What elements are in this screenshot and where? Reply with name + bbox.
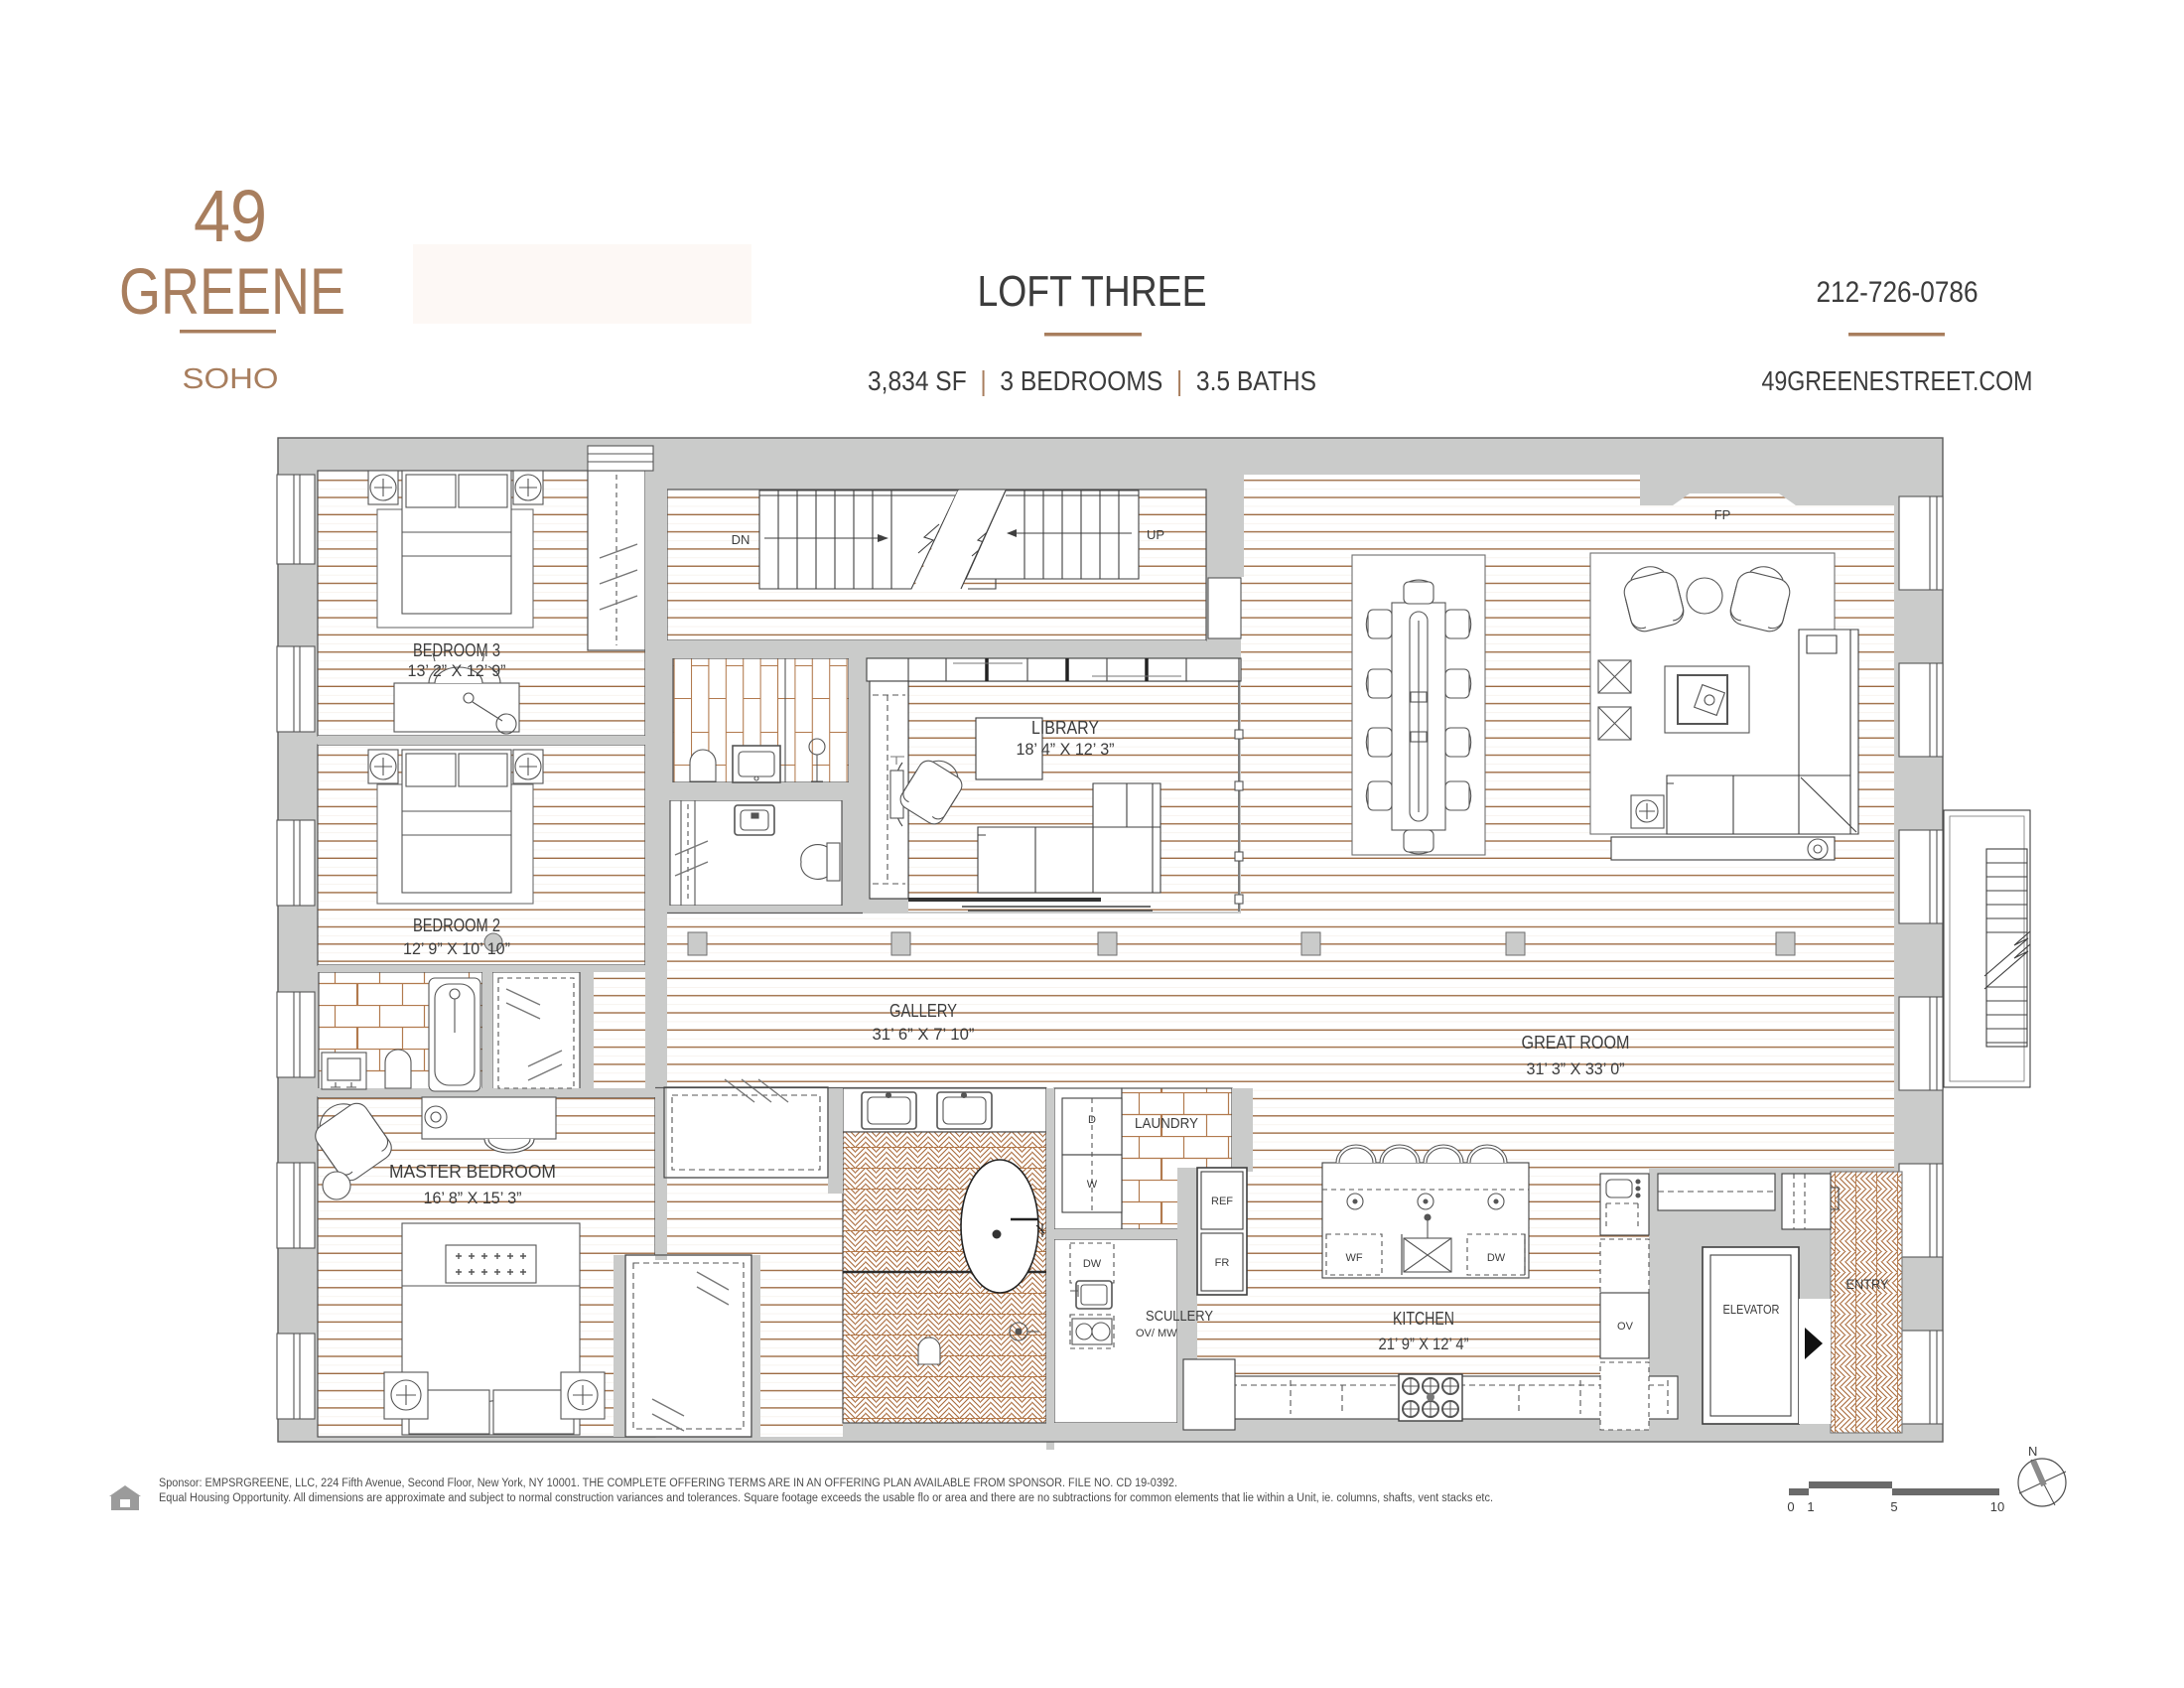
svg-text:MASTER BEDROOM: MASTER BEDROOM [389,1161,556,1182]
svg-text:DW: DW [1083,1258,1102,1270]
svg-text:49GREENESTREET.COM: 49GREENESTREET.COM [1762,365,2033,396]
svg-text:12’ 9” X 10’ 10”: 12’ 9” X 10’ 10” [403,940,510,958]
svg-text:WF: WF [1345,1252,1362,1264]
svg-text:OV: OV [1617,1321,1634,1333]
svg-text:DN: DN [732,532,751,547]
svg-text:0: 0 [1787,1499,1794,1514]
svg-text:FP: FP [1714,507,1731,522]
svg-text:31’ 6” X 7’ 10”: 31’ 6” X 7’ 10” [873,1026,975,1044]
svg-text:SCULLERY: SCULLERY [1146,1309,1213,1325]
svg-text:13’ 2” X 12’ 9”: 13’ 2” X 12’ 9” [408,662,506,680]
svg-text:3,834 SF | 3 BEDROOMS | 3.: 3,834 SF | 3 BEDROOMS | 3.5 BATHS [868,365,1316,396]
svg-text:REF: REF [1211,1196,1233,1207]
svg-text:LOFT THREE: LOFT THREE [978,267,1207,316]
svg-text:21’ 9” X 12’ 4”: 21’ 9” X 12’ 4” [1379,1336,1469,1353]
svg-text:5: 5 [1890,1499,1897,1514]
svg-text:18’ 4” X 12’ 3”: 18’ 4” X 12’ 3” [1017,741,1115,759]
svg-text:D: D [1088,1114,1096,1126]
svg-text:OV/ MW: OV/ MW [1136,1328,1177,1339]
svg-text:49: 49 [194,175,267,257]
svg-text:BEDROOM 2: BEDROOM 2 [413,914,500,935]
svg-text:ELEVATOR: ELEVATOR [1723,1303,1780,1317]
svg-text:1: 1 [1807,1499,1814,1514]
svg-text:Sponsor: EMPSRGREENE, LLC, 224: Sponsor: EMPSRGREENE, LLC, 224 Fifth Ave… [159,1477,1177,1489]
svg-text:212-726-0786: 212-726-0786 [1817,276,1979,309]
svg-text:UP: UP [1147,527,1164,542]
svg-text:FR: FR [1215,1257,1230,1269]
svg-text:N: N [2028,1444,2037,1459]
svg-text:GREAT ROOM: GREAT ROOM [1522,1032,1630,1053]
svg-text:LAUNDRY: LAUNDRY [1135,1116,1198,1132]
svg-text:16’ 8” X 15’ 3”: 16’ 8” X 15’ 3” [424,1190,522,1207]
svg-text:W: W [1087,1179,1098,1191]
svg-text:GREENE: GREENE [119,254,345,328]
svg-text:BEDROOM 3: BEDROOM 3 [413,639,500,660]
svg-text:SOHO: SOHO [183,363,279,395]
svg-text:GALLERY: GALLERY [889,1000,957,1021]
svg-text:LIBRARY: LIBRARY [1031,717,1099,738]
svg-text:Equal Housing Opportunity. All: Equal Housing Opportunity. All dimension… [159,1492,1493,1504]
svg-text:DW: DW [1487,1252,1506,1264]
svg-text:31’ 3” X 33’ 0”: 31’ 3” X 33’ 0” [1527,1060,1625,1078]
svg-text:ENTRY: ENTRY [1846,1277,1889,1292]
svg-text:KITCHEN: KITCHEN [1393,1308,1454,1329]
svg-text:10: 10 [1990,1499,2004,1514]
